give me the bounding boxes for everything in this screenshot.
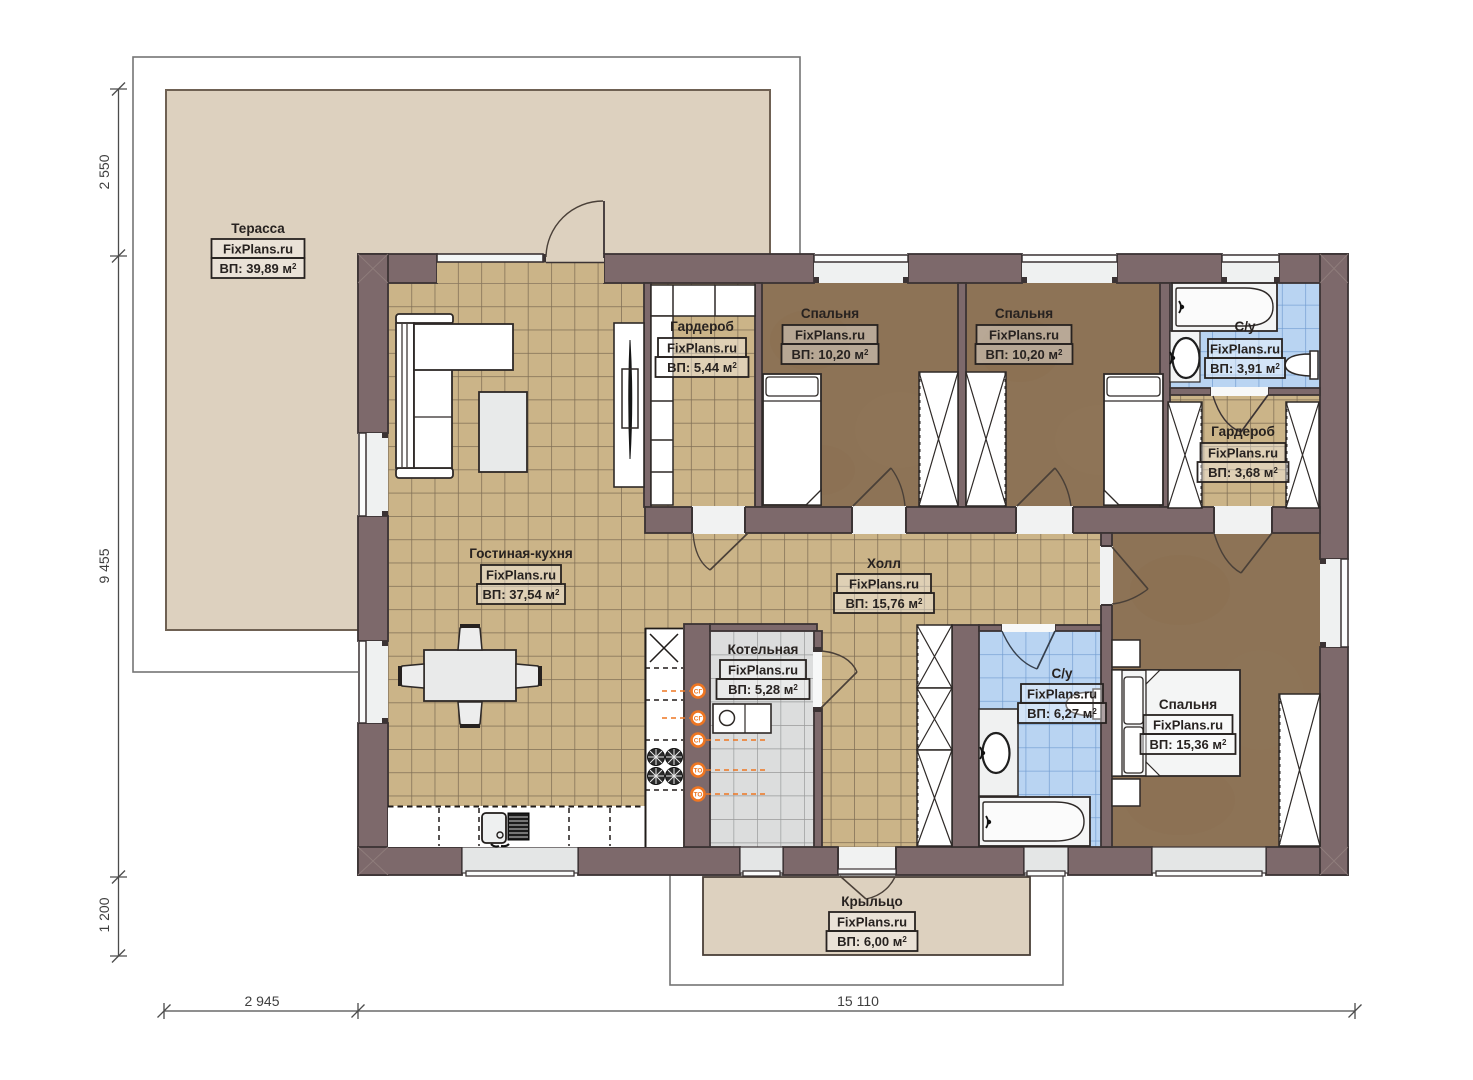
svg-text:FixPlans.ru: FixPlans.ru <box>795 328 865 343</box>
svg-text:FixPlans.ru: FixPlans.ru <box>849 577 919 592</box>
svg-text:FixPlans.ru: FixPlans.ru <box>837 915 907 930</box>
svg-text:СГ: СГ <box>694 738 703 745</box>
svg-text:Котельная: Котельная <box>728 642 799 657</box>
svg-text:1 200: 1 200 <box>96 897 112 932</box>
svg-text:С/у: С/у <box>1234 319 1256 334</box>
svg-text:С/у: С/у <box>1051 666 1073 681</box>
svg-text:ТО: ТО <box>694 768 703 775</box>
svg-text:ТО: ТО <box>694 792 703 799</box>
svg-text:FixPlans.ru: FixPlans.ru <box>989 328 1059 343</box>
svg-text:2 945: 2 945 <box>244 993 279 1009</box>
svg-text:15 110: 15 110 <box>837 993 879 1009</box>
svg-text:FixPlans.ru: FixPlans.ru <box>1153 718 1223 733</box>
svg-text:ВП: 10,20 м2: ВП: 10,20 м2 <box>986 347 1063 362</box>
svg-text:FixPlans.ru: FixPlans.ru <box>1027 687 1097 702</box>
svg-text:ВП: 15,36 м2: ВП: 15,36 м2 <box>1150 737 1227 752</box>
svg-text:ВП: 15,76 м2: ВП: 15,76 м2 <box>846 596 923 611</box>
svg-text:Терасса: Терасса <box>231 221 285 236</box>
svg-text:ВП: 39,89 м2: ВП: 39,89 м2 <box>220 261 297 276</box>
svg-text:Спальня: Спальня <box>801 306 859 321</box>
svg-text:ВП: 6,27 м2: ВП: 6,27 м2 <box>1027 706 1097 721</box>
svg-text:СГ: СГ <box>694 716 703 723</box>
svg-text:ВП: 10,20 м2: ВП: 10,20 м2 <box>792 347 869 362</box>
svg-text:Спальня: Спальня <box>1159 697 1217 712</box>
svg-text:Гардероб: Гардероб <box>1211 424 1275 439</box>
svg-text:FixPlans.ru: FixPlans.ru <box>667 341 737 356</box>
svg-text:Спальня: Спальня <box>995 306 1053 321</box>
svg-text:ВП: 6,00 м2: ВП: 6,00 м2 <box>837 934 907 949</box>
svg-text:ВП: 5,44 м2: ВП: 5,44 м2 <box>667 360 737 375</box>
svg-text:Холл: Холл <box>867 556 901 571</box>
svg-text:СГ: СГ <box>694 689 703 696</box>
svg-text:Крыльцо: Крыльцо <box>841 894 902 909</box>
svg-text:Гостиная-кухня: Гостиная-кухня <box>469 546 572 561</box>
svg-text:ВП: 5,28 м2: ВП: 5,28 м2 <box>728 682 798 697</box>
svg-text:9 455: 9 455 <box>96 548 112 583</box>
svg-text:2 550: 2 550 <box>96 154 112 189</box>
svg-text:FixPlans.ru: FixPlans.ru <box>1208 446 1278 461</box>
svg-text:ВП: 3,91 м2: ВП: 3,91 м2 <box>1210 361 1280 376</box>
svg-text:FixPlans.ru: FixPlans.ru <box>728 663 798 678</box>
svg-text:FixPlans.ru: FixPlans.ru <box>1210 342 1280 357</box>
svg-text:Гардероб: Гардероб <box>670 319 734 334</box>
svg-text:ВП: 3,68 м2: ВП: 3,68 м2 <box>1208 465 1278 480</box>
svg-text:ВП: 37,54 м2: ВП: 37,54 м2 <box>483 587 560 602</box>
svg-text:FixPlans.ru: FixPlans.ru <box>486 568 556 583</box>
svg-text:FixPlans.ru: FixPlans.ru <box>223 242 293 257</box>
